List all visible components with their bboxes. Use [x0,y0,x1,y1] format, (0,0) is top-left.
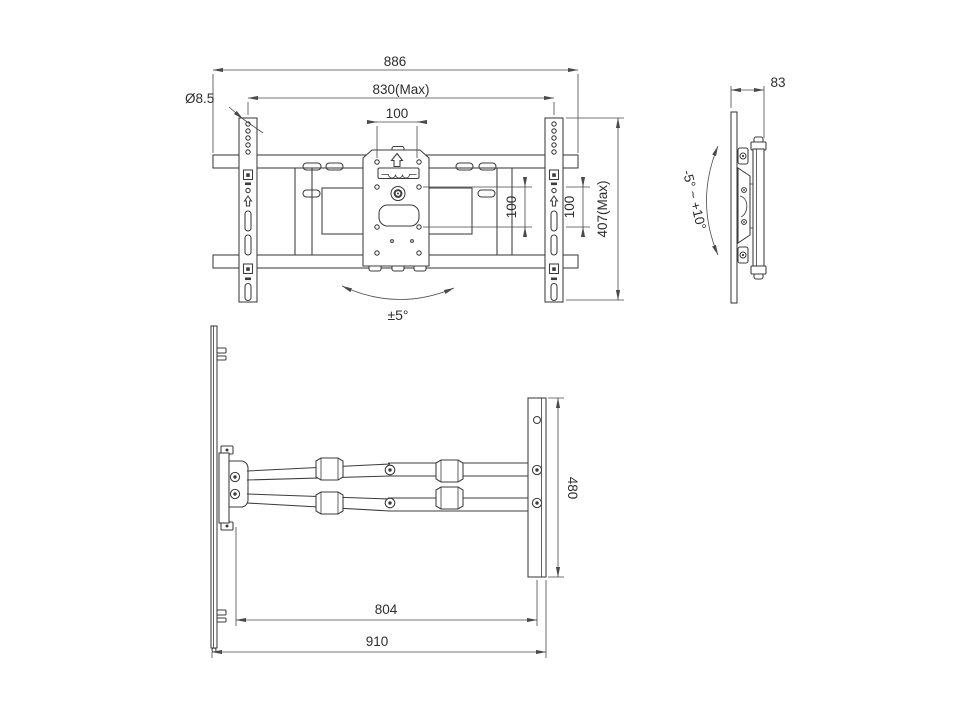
dim-depth: 83 [731,75,786,138]
tilt-range-label: -5° ~ +10° [680,168,709,231]
dim-wall-plate-width: 480 [548,398,580,577]
wall-plate-width-label: 480 [565,477,580,500]
dim-overall-width: 886 [213,54,578,153]
vesa-plate [363,147,429,272]
rail-span-label: 830(Max) [372,82,429,97]
tv-rail-right [545,118,563,302]
side-view: -5° ~ +10° 83 [680,75,786,303]
hole-diameter-label: Ø8.5 [185,91,214,106]
top-wall-plate [528,398,546,577]
overall-height-label: 407(Max) [595,180,610,237]
arm-sleeve [436,460,463,482]
tilt-arc [707,146,719,255]
swivel-arc [342,286,454,300]
dim-vesa-height-outer: 100 [562,180,590,234]
arm-sleeve [316,492,343,514]
pivot-screws [230,465,394,508]
vesa-height-outer-label: 100 [562,196,577,219]
side-tv-rail [731,112,737,303]
front-view: ±5° 886 830(Max) 100 Ø8.5 [185,54,624,323]
dim-arm-extension: 804 [236,527,537,626]
depth-label: 83 [770,75,785,90]
max-extension-label: 910 [366,634,389,649]
vesa-width-label: 100 [386,106,409,121]
swivel-angle-label: ±5° [387,307,408,323]
top-hinge [219,446,248,530]
side-wall-plate [751,137,766,279]
top-arms [230,458,529,514]
tv-rail-left [239,118,257,302]
overall-width-label: 886 [384,54,407,69]
top-view: 804 910 480 [211,326,580,658]
vesa-height-inner-label: 100 [504,196,519,219]
wall-mount-technical-drawing: ±5° 886 830(Max) 100 Ø8.5 [0,0,960,720]
arm-extension-label: 804 [375,602,398,617]
side-tilt-mechanism [738,148,753,263]
arm-sleeve [316,458,343,480]
arm-sleeve [436,487,463,509]
dim-max-extension: 910 [212,580,546,658]
